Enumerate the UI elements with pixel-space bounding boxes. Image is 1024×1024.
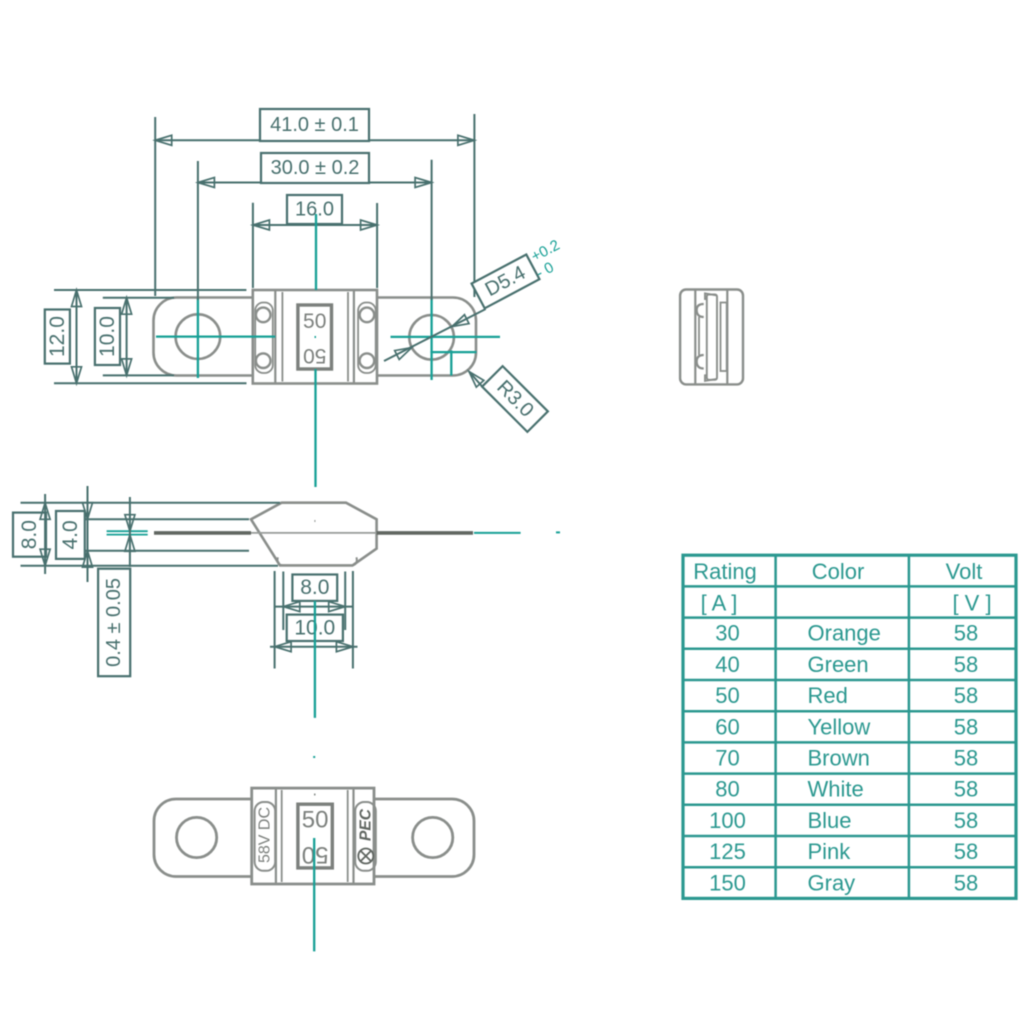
svg-text:58: 58 — [954, 808, 978, 833]
svg-text:50: 50 — [715, 683, 739, 708]
svg-text:Orange: Orange — [808, 621, 881, 646]
svg-text:70: 70 — [715, 746, 739, 771]
svg-text:12.0: 12.0 — [46, 316, 69, 357]
svg-text:40: 40 — [715, 652, 739, 677]
svg-text:Color: Color — [812, 559, 865, 584]
svg-text:100: 100 — [709, 808, 746, 833]
svg-text:41.0 ± 0.1: 41.0 ± 0.1 — [270, 114, 359, 136]
svg-text:58: 58 — [954, 652, 978, 677]
svg-text:4.0: 4.0 — [59, 520, 82, 549]
svg-text:60: 60 — [715, 714, 739, 739]
svg-text:50: 50 — [302, 807, 329, 834]
svg-text:58: 58 — [954, 621, 978, 646]
svg-text:30.0 ± 0.2: 30.0 ± 0.2 — [271, 157, 360, 179]
svg-text:150: 150 — [709, 870, 746, 895]
svg-text:Rating: Rating — [693, 559, 757, 584]
svg-text:Gray: Gray — [808, 870, 856, 895]
svg-text:58: 58 — [954, 870, 978, 895]
svg-text:58: 58 — [954, 839, 978, 864]
svg-text:58: 58 — [954, 683, 978, 708]
svg-text:30: 30 — [715, 621, 739, 646]
svg-text:58: 58 — [954, 746, 978, 771]
svg-text:16.0: 16.0 — [295, 199, 334, 221]
svg-text:Brown: Brown — [808, 746, 870, 771]
svg-text:10.0: 10.0 — [96, 316, 119, 357]
svg-text:58: 58 — [954, 777, 978, 802]
svg-text:[ V ]: [ V ] — [952, 591, 991, 616]
svg-text:58: 58 — [954, 714, 978, 739]
svg-text:0.4 ± 0.05: 0.4 ± 0.05 — [103, 578, 125, 667]
svg-text:50: 50 — [303, 310, 326, 333]
svg-text:50: 50 — [303, 344, 326, 367]
svg-text:Yellow: Yellow — [808, 714, 871, 739]
svg-text:58V DC: 58V DC — [256, 807, 273, 863]
svg-text:Green: Green — [808, 652, 869, 677]
svg-text:Pink: Pink — [808, 839, 852, 864]
svg-text:PEC: PEC — [357, 808, 374, 841]
svg-text:Red: Red — [808, 683, 848, 708]
svg-text:125: 125 — [709, 839, 746, 864]
svg-text:White: White — [808, 777, 864, 802]
svg-text:8.0: 8.0 — [300, 576, 329, 599]
svg-text:8.0: 8.0 — [18, 520, 41, 549]
svg-text:80: 80 — [715, 777, 739, 802]
svg-text:Volt: Volt — [946, 559, 983, 584]
svg-text:Blue: Blue — [808, 808, 852, 833]
svg-text:[ A ]: [ A ] — [701, 591, 738, 616]
